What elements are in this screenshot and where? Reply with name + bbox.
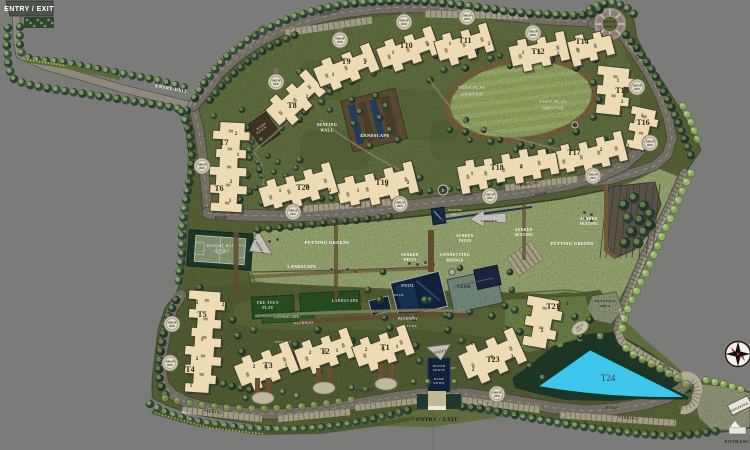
svg-text:T17: T17 bbox=[567, 148, 580, 157]
svg-text:SUNKEN: SUNKEN bbox=[515, 228, 532, 232]
svg-text:SUNKEN: SUNKEN bbox=[580, 217, 597, 221]
svg-text:WALL: WALL bbox=[320, 128, 333, 133]
svg-text:OFF: OFF bbox=[290, 212, 296, 216]
svg-text:T1: T1 bbox=[380, 343, 389, 352]
svg-text:PUTTING GREENS: PUTTING GREENS bbox=[551, 241, 594, 246]
svg-text:LANDSCAPE: LANDSCAPE bbox=[360, 133, 389, 138]
svg-text:OFF: OFF bbox=[401, 22, 407, 26]
svg-text:T5: T5 bbox=[197, 310, 206, 319]
svg-text:T15: T15 bbox=[615, 86, 628, 95]
svg-text:T21: T21 bbox=[546, 302, 559, 311]
svg-text:OFF: OFF bbox=[169, 324, 175, 328]
svg-text:OFF: OFF bbox=[530, 33, 536, 37]
svg-text:BRIDGE: BRIDGE bbox=[446, 259, 463, 263]
svg-text:T23: T23 bbox=[486, 355, 499, 364]
svg-text:T6: T6 bbox=[214, 184, 223, 193]
svg-text:LANDSCAPE: LANDSCAPE bbox=[287, 264, 316, 269]
svg-text:T7: T7 bbox=[219, 138, 228, 147]
svg-text:T3: T3 bbox=[263, 361, 272, 370]
svg-text:T10: T10 bbox=[399, 41, 412, 50]
svg-text:OFF: OFF bbox=[397, 204, 403, 208]
svg-text:T8: T8 bbox=[287, 101, 296, 110]
svg-text:OFF: OFF bbox=[337, 40, 343, 44]
svg-text:ROAD: ROAD bbox=[327, 217, 339, 221]
svg-text:SUNKEN: SUNKEN bbox=[456, 234, 473, 238]
svg-text:T11: T11 bbox=[459, 36, 472, 45]
svg-text:OFF: OFF bbox=[494, 394, 500, 398]
svg-text:T4: T4 bbox=[185, 365, 194, 374]
svg-text:PUTTING GREENS: PUTTING GREENS bbox=[305, 240, 350, 245]
svg-text:OFF: OFF bbox=[273, 82, 279, 86]
svg-text:SEATING: SEATING bbox=[317, 122, 338, 127]
svg-text:T12: T12 bbox=[531, 47, 544, 56]
svg-text:SEATING: SEATING bbox=[580, 222, 599, 226]
svg-text:T24: T24 bbox=[601, 373, 616, 383]
svg-text:OFF: OFF bbox=[634, 87, 640, 91]
svg-text:OFF: OFF bbox=[487, 196, 493, 200]
svg-text:D: D bbox=[442, 188, 445, 193]
svg-text:PATIO: PATIO bbox=[459, 239, 472, 243]
svg-text:T16: T16 bbox=[636, 118, 649, 127]
svg-text:T20: T20 bbox=[296, 183, 309, 192]
svg-text:SEATING: SEATING bbox=[515, 233, 534, 237]
svg-text:T14: T14 bbox=[575, 37, 588, 46]
svg-text:SUNKEN: SUNKEN bbox=[401, 253, 418, 257]
svg-text:T18: T18 bbox=[490, 163, 503, 172]
svg-text:T9: T9 bbox=[341, 57, 350, 66]
svg-text:PATIO: PATIO bbox=[404, 258, 417, 262]
svg-text:ROAD: ROAD bbox=[215, 216, 227, 220]
svg-text:T2: T2 bbox=[320, 347, 329, 356]
svg-text:CONNECTING: CONNECTING bbox=[440, 253, 470, 257]
svg-text:ENTRY / EXIT: ENTRY / EXIT bbox=[416, 417, 458, 423]
svg-text:OFF: OFF bbox=[464, 17, 470, 21]
svg-text:ENTRANCE: ENTRANCE bbox=[725, 439, 750, 444]
svg-text:T19: T19 bbox=[375, 178, 388, 187]
svg-text:OFF: OFF bbox=[167, 363, 173, 367]
svg-text:OFF: OFF bbox=[199, 166, 205, 170]
svg-text:ENTRY / EXIT: ENTRY / EXIT bbox=[4, 6, 54, 13]
svg-text:OFF: OFF bbox=[647, 143, 653, 147]
svg-text:ROAD: ROAD bbox=[447, 387, 458, 391]
svg-text:OFF: OFF bbox=[590, 176, 596, 180]
